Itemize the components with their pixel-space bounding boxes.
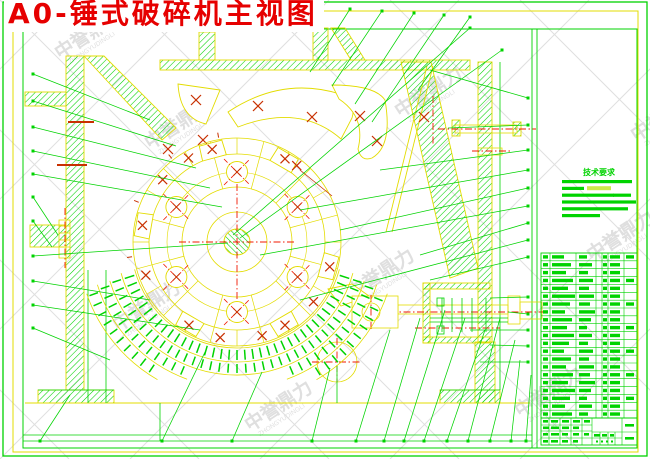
watermark-text: 中誉鼎力 <box>240 376 316 437</box>
tech-notes-title: 技术要求 <box>583 167 616 177</box>
cad-drawing: 中誉鼎力ZHONGYUDINGLI中誉鼎力ZHONGYUDINGLI中誉鼎力ZH… <box>0 0 650 459</box>
cad-viewer: A0-锤式破碎机主视图 中誉鼎力ZHONGYUDINGLI中誉鼎力ZHONGYU… <box>0 0 650 459</box>
page-title: A0-锤式破碎机主视图 <box>4 0 324 32</box>
title-block <box>541 418 637 445</box>
technical-notes: 技术要求 <box>562 167 636 217</box>
